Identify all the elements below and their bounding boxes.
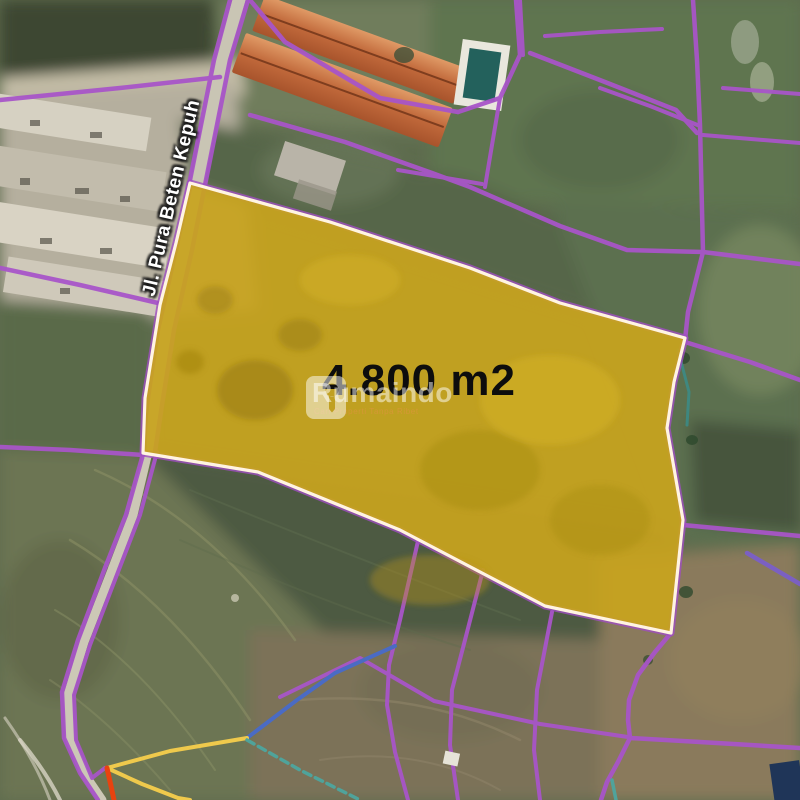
watermark: Rumaindo Cari Properti Tanpa Ribet <box>306 376 453 416</box>
rumaindo-logo-icon <box>306 376 346 419</box>
navy-roof <box>769 760 800 800</box>
pool-area <box>454 39 511 111</box>
map-viewport[interactable]: Jl. Pura Beten Kepuh 4.800 m2 Rumaindo C… <box>0 0 800 800</box>
